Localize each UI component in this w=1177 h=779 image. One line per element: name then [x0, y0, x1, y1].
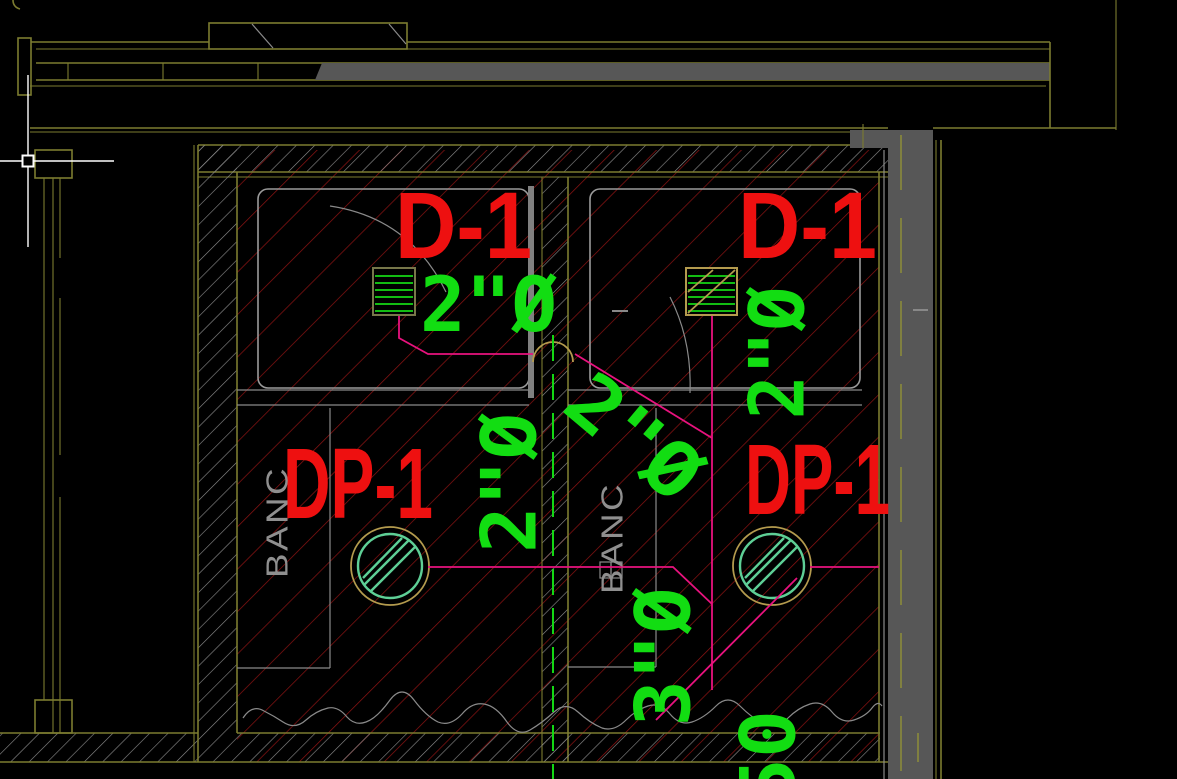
left-wall-hatch [198, 145, 237, 762]
bottom-exterior-wall-hatch [0, 733, 198, 762]
label-pipe-3in-main: 3"Ø [619, 587, 708, 726]
top-wall-hatch [198, 145, 888, 172]
top-wall-assembly [13, 0, 1116, 132]
column-hatched-top [35, 150, 72, 178]
label-pipe-2in-left-riser: 2"Ø [465, 413, 554, 553]
left-exterior-structure [0, 150, 198, 762]
pickbox[interactable] [23, 156, 34, 167]
label-bench-center: BANC [595, 482, 630, 594]
label-floor-drain-right: DP-1 [745, 424, 890, 536]
left-end-column [18, 38, 31, 95]
crosshair-cursor[interactable] [0, 75, 114, 247]
right-wall-fill [888, 130, 933, 779]
label-pipe-2in-right-riser: 2"Ø [733, 286, 822, 419]
label-floor-drain-left: DP-1 [283, 428, 433, 540]
label-pipe-50: 50 [724, 710, 813, 779]
label-shower-drain-right: D-1 [738, 173, 877, 279]
corner-arc [13, 0, 20, 9]
cad-drawing-canvas: D-1 D-1 DP-1 DP-1 2"Ø 2"Ø 2"Ø 2"Ø 3"Ø 50… [0, 0, 1177, 779]
label-bench-left: BANC [260, 466, 295, 578]
top-recess-box [209, 23, 407, 49]
cad-viewport[interactable]: D-1 D-1 DP-1 DP-1 2"Ø 2"Ø 2"Ø 2"Ø 3"Ø 50… [0, 0, 1177, 779]
gray-beam-fill [315, 63, 1050, 80]
shower-drain-right-symbol [686, 268, 737, 315]
label-pipe-2in-shower-left: 2"Ø [420, 260, 557, 349]
